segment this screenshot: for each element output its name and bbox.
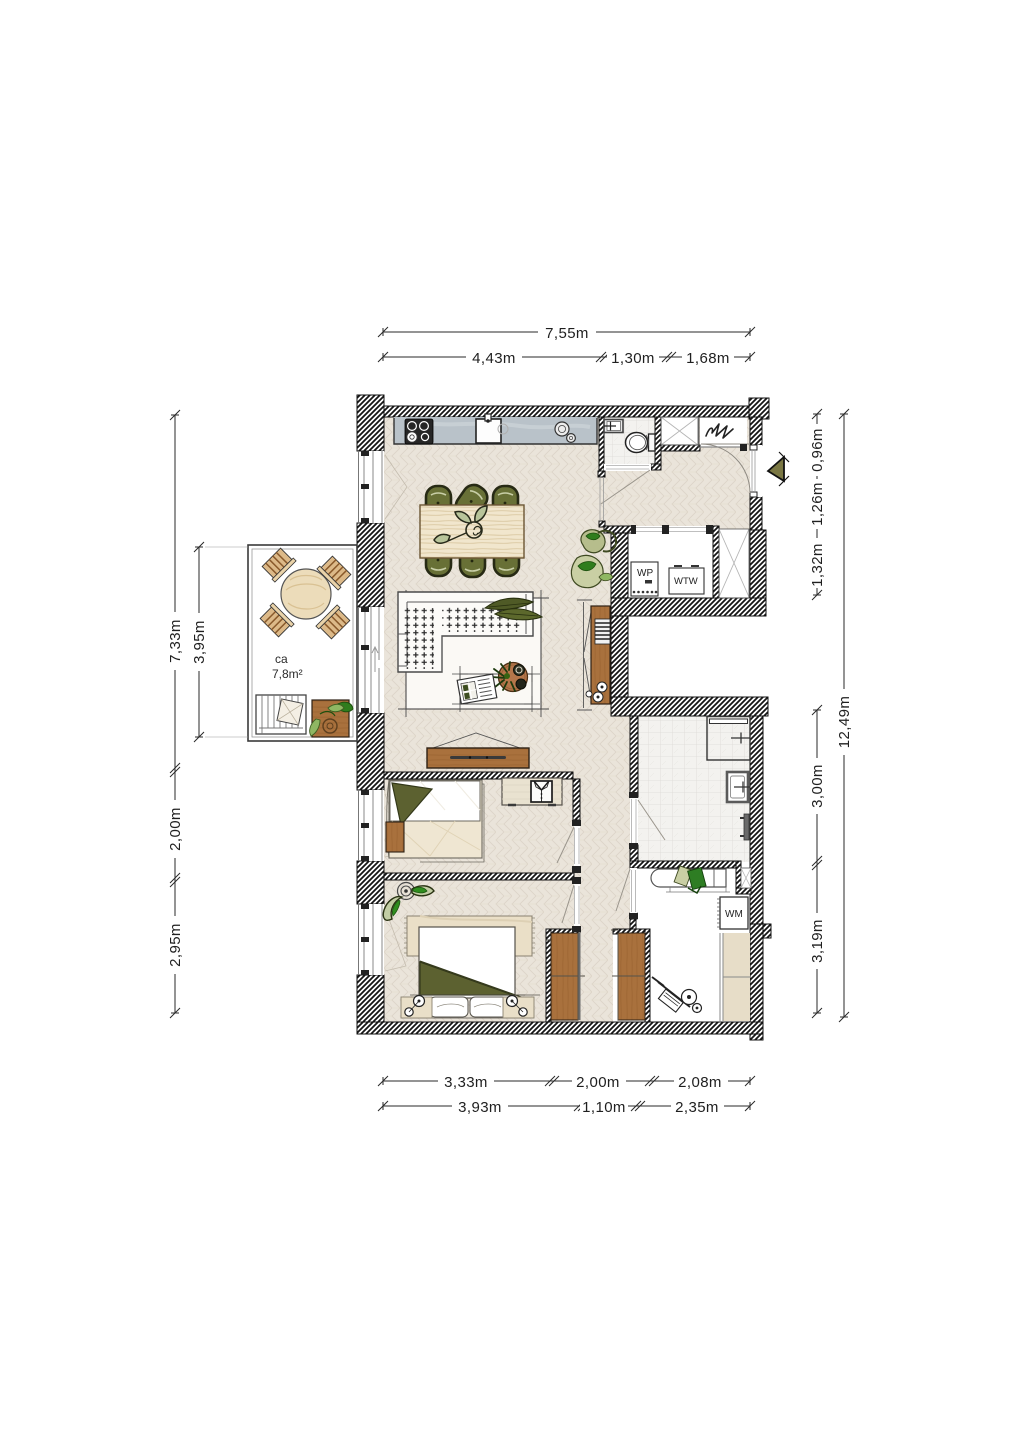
svg-text:7,8m²: 7,8m² <box>272 667 303 681</box>
svg-text:3,33m: 3,33m <box>444 1074 488 1091</box>
svg-text:WM: WM <box>725 909 743 920</box>
svg-text:3,19m: 3,19m <box>809 919 826 963</box>
svg-text:1,30m: 1,30m <box>611 350 655 367</box>
svg-text:0,96m: 0,96m <box>809 428 826 472</box>
svg-text:2,95m: 2,95m <box>167 923 184 967</box>
svg-text:7,33m: 7,33m <box>167 619 184 663</box>
svg-text:1,26m: 1,26m <box>809 482 826 526</box>
svg-text:4,43m: 4,43m <box>472 350 516 367</box>
svg-text:2,00m: 2,00m <box>167 807 184 851</box>
svg-text:1,32m: 1,32m <box>809 543 826 587</box>
svg-text:2,08m: 2,08m <box>678 1074 722 1091</box>
svg-text:2,00m: 2,00m <box>576 1074 620 1091</box>
svg-text:WTW: WTW <box>674 576 698 587</box>
svg-text:1,68m: 1,68m <box>686 350 730 367</box>
svg-text:3,93m: 3,93m <box>458 1099 502 1116</box>
svg-text:12,49m: 12,49m <box>836 696 853 748</box>
svg-text:2,35m: 2,35m <box>675 1099 719 1116</box>
svg-text:3,95m: 3,95m <box>191 620 208 664</box>
svg-text:3,00m: 3,00m <box>809 764 826 808</box>
svg-text:1,10m: 1,10m <box>582 1099 626 1116</box>
svg-text:WP: WP <box>637 568 653 579</box>
svg-text:7,55m: 7,55m <box>545 325 589 342</box>
svg-text:ca: ca <box>275 652 288 666</box>
